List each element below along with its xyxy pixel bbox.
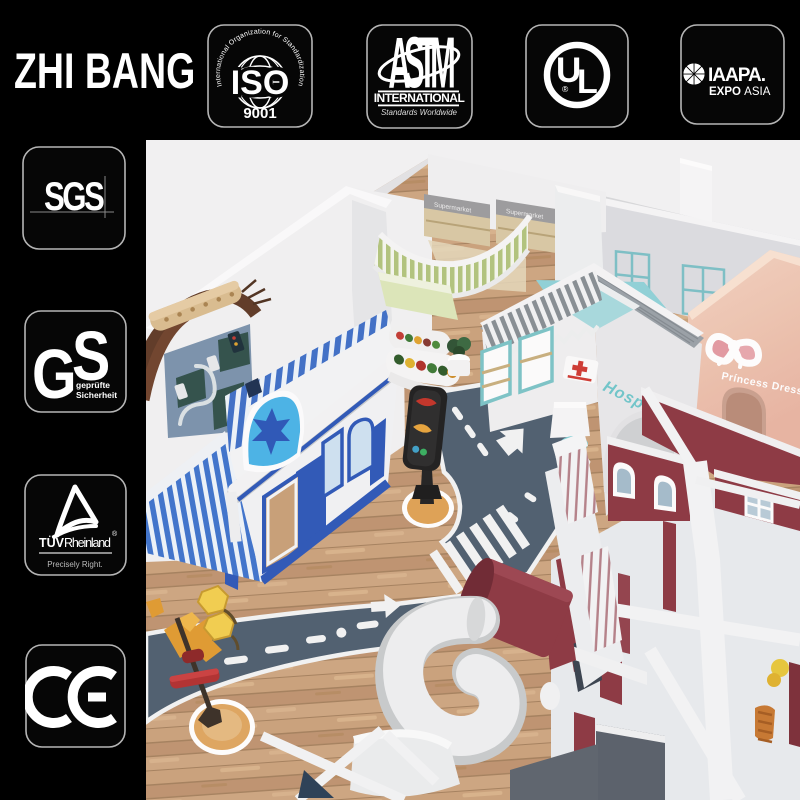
svg-text:®: ® bbox=[562, 84, 569, 94]
svg-text:G: G bbox=[32, 335, 77, 413]
svg-text:IAAPA.: IAAPA. bbox=[708, 65, 765, 86]
svg-text:geprüfte: geprüfte bbox=[76, 380, 110, 390]
svg-text:ISO: ISO bbox=[231, 64, 290, 102]
svg-text:®: ® bbox=[112, 530, 118, 538]
svg-text:9001: 9001 bbox=[243, 105, 276, 122]
svg-text:INTERNATIONAL: INTERNATIONAL bbox=[374, 91, 465, 105]
svg-text:Sicherheit: Sicherheit bbox=[76, 390, 117, 400]
svg-text:Precisely Right.: Precisely Right. bbox=[47, 560, 103, 569]
svg-text:Standards Worldwide: Standards Worldwide bbox=[381, 108, 458, 117]
svg-text:TÜV: TÜV bbox=[39, 535, 65, 550]
svg-text:L: L bbox=[577, 63, 598, 101]
svg-text:EXPO ASIA: EXPO ASIA bbox=[709, 86, 771, 98]
svg-text:Rheinland: Rheinland bbox=[64, 536, 111, 550]
